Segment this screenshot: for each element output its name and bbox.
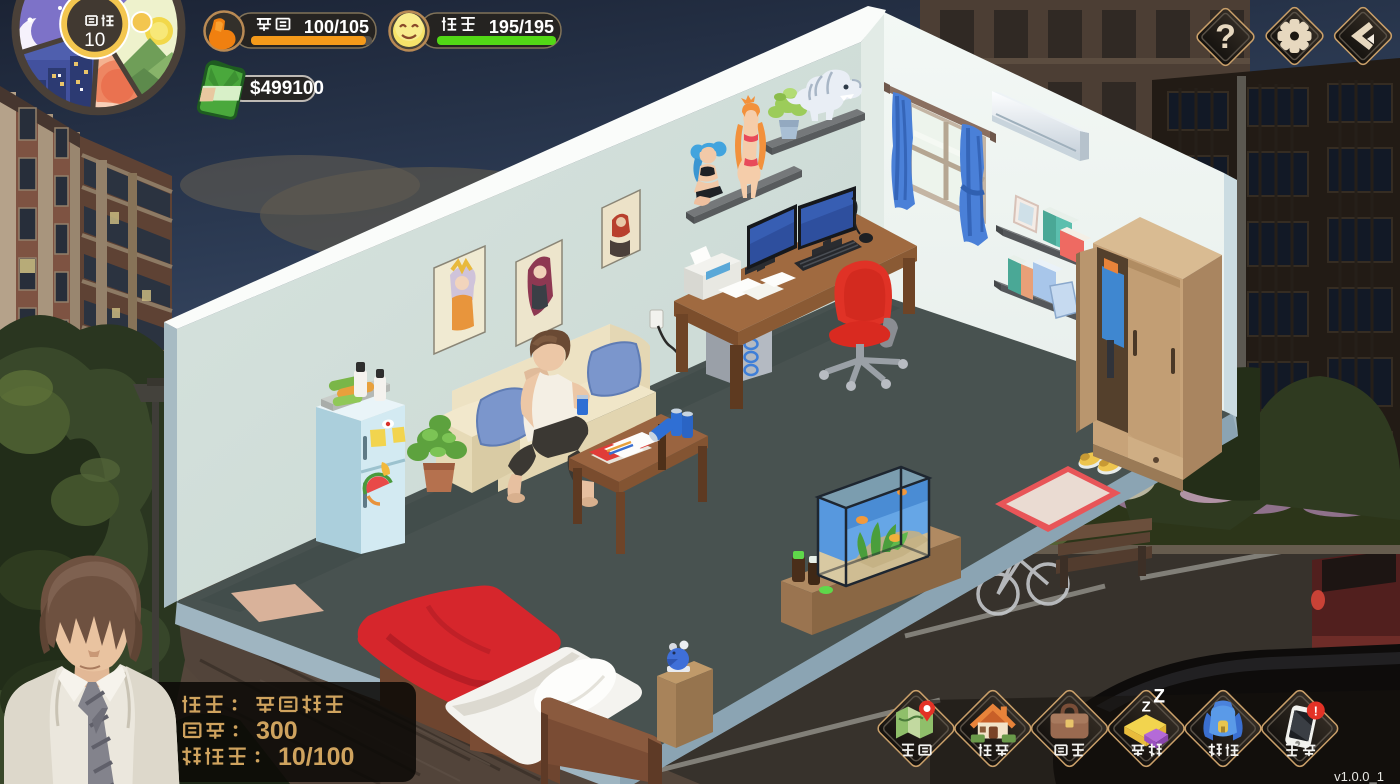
svg-text:195/195: 195/195 (489, 17, 554, 37)
svg-text:300: 300 (256, 717, 298, 745)
svg-text:100/105: 100/105 (304, 17, 369, 37)
svg-text:!: ! (1314, 704, 1318, 719)
svg-text:10: 10 (84, 30, 105, 51)
svg-text:?: ? (1215, 18, 1236, 56)
svg-text:Z: Z (1142, 699, 1151, 716)
svg-text:$499100: $499100 (250, 78, 324, 99)
svg-text:10/100: 10/100 (278, 743, 354, 771)
svg-text:Z: Z (1153, 687, 1165, 708)
svg-text:v1.0.0_1: v1.0.0_1 (1334, 769, 1384, 784)
